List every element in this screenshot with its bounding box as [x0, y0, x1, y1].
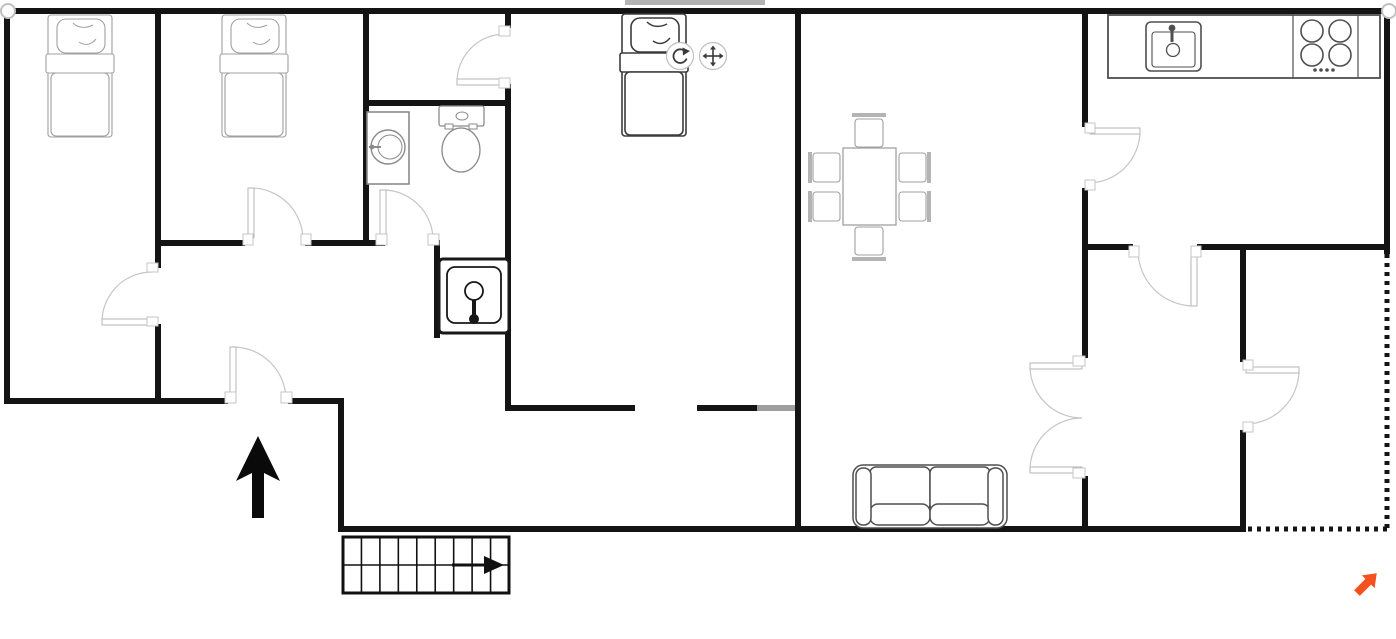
- door-jamb: [499, 78, 510, 88]
- door-swing-arc: [457, 34, 505, 82]
- door-jamb: [1085, 123, 1095, 133]
- door-kitchen[interactable]: [1085, 123, 1140, 190]
- door-jamb: [499, 26, 510, 36]
- chair-back: [808, 152, 812, 183]
- floorplan-editor-canvas[interactable]: [0, 0, 1396, 639]
- door-leaf[interactable]: [1191, 252, 1197, 306]
- door-swing-arc: [1246, 370, 1299, 424]
- door-swing-arc: [233, 347, 286, 400]
- sofa-seat-cushion: [930, 504, 990, 525]
- dining-set[interactable]: [808, 113, 931, 261]
- door-swing-arc: [1030, 418, 1082, 470]
- wall-segment[interactable]: [1082, 244, 1133, 250]
- bed-2[interactable]: [220, 15, 288, 137]
- door-entrance[interactable]: [225, 347, 292, 403]
- drain: [465, 282, 483, 300]
- wall-segment[interactable]: [1082, 476, 1088, 532]
- seat-hinge: [445, 124, 453, 129]
- door-jamb: [428, 234, 439, 245]
- door-jamb: [1073, 468, 1085, 478]
- sofa[interactable]: [853, 465, 1007, 528]
- door-balcony[interactable]: [1243, 360, 1299, 432]
- hob-knob-dot: [1331, 68, 1335, 72]
- move-icon[interactable]: [700, 43, 727, 70]
- door-closet[interactable]: [457, 26, 510, 88]
- kitchen-counter[interactable]: [1108, 15, 1380, 78]
- chair[interactable]: [813, 153, 840, 182]
- door-jamb: [225, 392, 236, 403]
- wall-segment[interactable]: [1082, 8, 1088, 127]
- door-leaf[interactable]: [248, 188, 254, 238]
- door-swing-arc: [383, 190, 433, 240]
- door-leaf[interactable]: [380, 190, 386, 238]
- chair[interactable]: [855, 119, 883, 147]
- chair[interactable]: [813, 192, 840, 221]
- door-leaf[interactable]: [1090, 128, 1140, 134]
- wall-segment[interactable]: [1197, 244, 1390, 250]
- wall-segment[interactable]: [795, 8, 801, 532]
- french-door-bottom[interactable]: [1030, 418, 1085, 478]
- door-leaf[interactable]: [102, 319, 152, 325]
- door-jamb: [376, 234, 387, 245]
- stairs[interactable]: [343, 537, 509, 593]
- dining-table[interactable]: [843, 148, 896, 225]
- bed-part: [220, 54, 288, 73]
- wall-segment[interactable]: [305, 240, 368, 246]
- door-room-right[interactable]: [1129, 246, 1201, 306]
- door-jamb: [301, 234, 311, 245]
- door-bathroom[interactable]: [376, 190, 439, 245]
- door-leaf[interactable]: [230, 347, 236, 398]
- chair[interactable]: [899, 153, 926, 182]
- wall-segment[interactable]: [338, 526, 1246, 532]
- wall-segment[interactable]: [1082, 188, 1088, 358]
- door-jamb: [1191, 246, 1201, 257]
- french-door-top[interactable]: [1030, 356, 1085, 418]
- chair-back: [852, 113, 886, 117]
- wall-segment[interactable]: [155, 324, 161, 404]
- washing-machine[interactable]: [367, 112, 409, 184]
- bed-part: [46, 54, 114, 73]
- wall-opening-segment[interactable]: [757, 405, 795, 411]
- wall-segment[interactable]: [1240, 430, 1246, 532]
- door-leaf[interactable]: [1246, 367, 1299, 373]
- sofa-seat-cushion: [870, 504, 930, 525]
- wall-segment[interactable]: [288, 398, 344, 404]
- wall-segment[interactable]: [1240, 244, 1246, 362]
- wall-segment[interactable]: [4, 398, 228, 404]
- rotate-icon[interactable]: [667, 43, 694, 70]
- chair-back: [927, 152, 931, 183]
- wall-endpoint-handle[interactable]: [1382, 4, 1396, 18]
- door-swing-arc: [1030, 366, 1082, 418]
- wall-segment[interactable]: [505, 8, 511, 28]
- wall-segment[interactable]: [1384, 8, 1390, 254]
- bed-3-selected[interactable]: [620, 14, 688, 136]
- door-swing-arc: [251, 188, 303, 240]
- wall-segment[interactable]: [505, 405, 635, 411]
- cursor-arrow-icon: [1351, 567, 1384, 600]
- door-jamb: [147, 317, 158, 326]
- chair[interactable]: [899, 192, 926, 221]
- door-jamb: [243, 234, 253, 245]
- latch-knob: [370, 145, 375, 150]
- bed-part: [57, 19, 105, 53]
- north-arrow[interactable]: [236, 436, 280, 518]
- wall-segment[interactable]: [338, 398, 344, 532]
- door-swing-arc: [1138, 252, 1194, 306]
- door-bedroom-1[interactable]: [102, 263, 158, 326]
- door-jamb: [1073, 356, 1085, 366]
- door-jamb: [281, 392, 292, 403]
- door-jamb: [1243, 360, 1253, 370]
- chair[interactable]: [855, 227, 883, 255]
- sofa-armrest: [856, 468, 871, 525]
- chair-back: [852, 257, 886, 261]
- bed-part: [231, 19, 279, 53]
- hob-knob-dot: [1319, 68, 1323, 72]
- floorplan-svg: [0, 0, 1396, 639]
- seat-hinge: [469, 124, 477, 129]
- wall-opening-segment[interactable]: [625, 0, 765, 5]
- wall-endpoint-handle[interactable]: [1, 4, 15, 18]
- door-leaf[interactable]: [457, 79, 504, 85]
- wall-segment[interactable]: [697, 405, 757, 411]
- walls[interactable]: [4, 8, 1392, 532]
- bowl: [442, 128, 480, 172]
- hob-knob-dot: [1313, 68, 1317, 72]
- door-jamb: [147, 263, 158, 272]
- toilet[interactable]: [439, 106, 484, 172]
- utility-sink[interactable]: [439, 259, 509, 333]
- faucet-tip: [469, 314, 479, 324]
- door-swing-arc: [1088, 131, 1140, 183]
- chair-back: [808, 191, 812, 222]
- wall-segment[interactable]: [4, 8, 1392, 14]
- door-swing-arc: [102, 272, 152, 322]
- wall-segment[interactable]: [155, 8, 161, 268]
- bed-part: [51, 73, 109, 136]
- door-jamb: [1243, 422, 1253, 432]
- bed-1[interactable]: [46, 15, 114, 137]
- bed-part: [225, 73, 283, 136]
- door-jamb: [1085, 180, 1095, 190]
- wall-segment[interactable]: [4, 8, 10, 404]
- door-bedroom-2[interactable]: [243, 188, 311, 245]
- bed-part: [625, 72, 683, 135]
- door-jamb: [1129, 246, 1139, 257]
- wall-segment[interactable]: [155, 240, 245, 246]
- chair-back: [927, 191, 931, 222]
- sofa-armrest: [988, 468, 1003, 525]
- hob-knob-dot: [1325, 68, 1329, 72]
- wall-segment[interactable]: [505, 84, 511, 411]
- wall-segment[interactable]: [363, 100, 511, 106]
